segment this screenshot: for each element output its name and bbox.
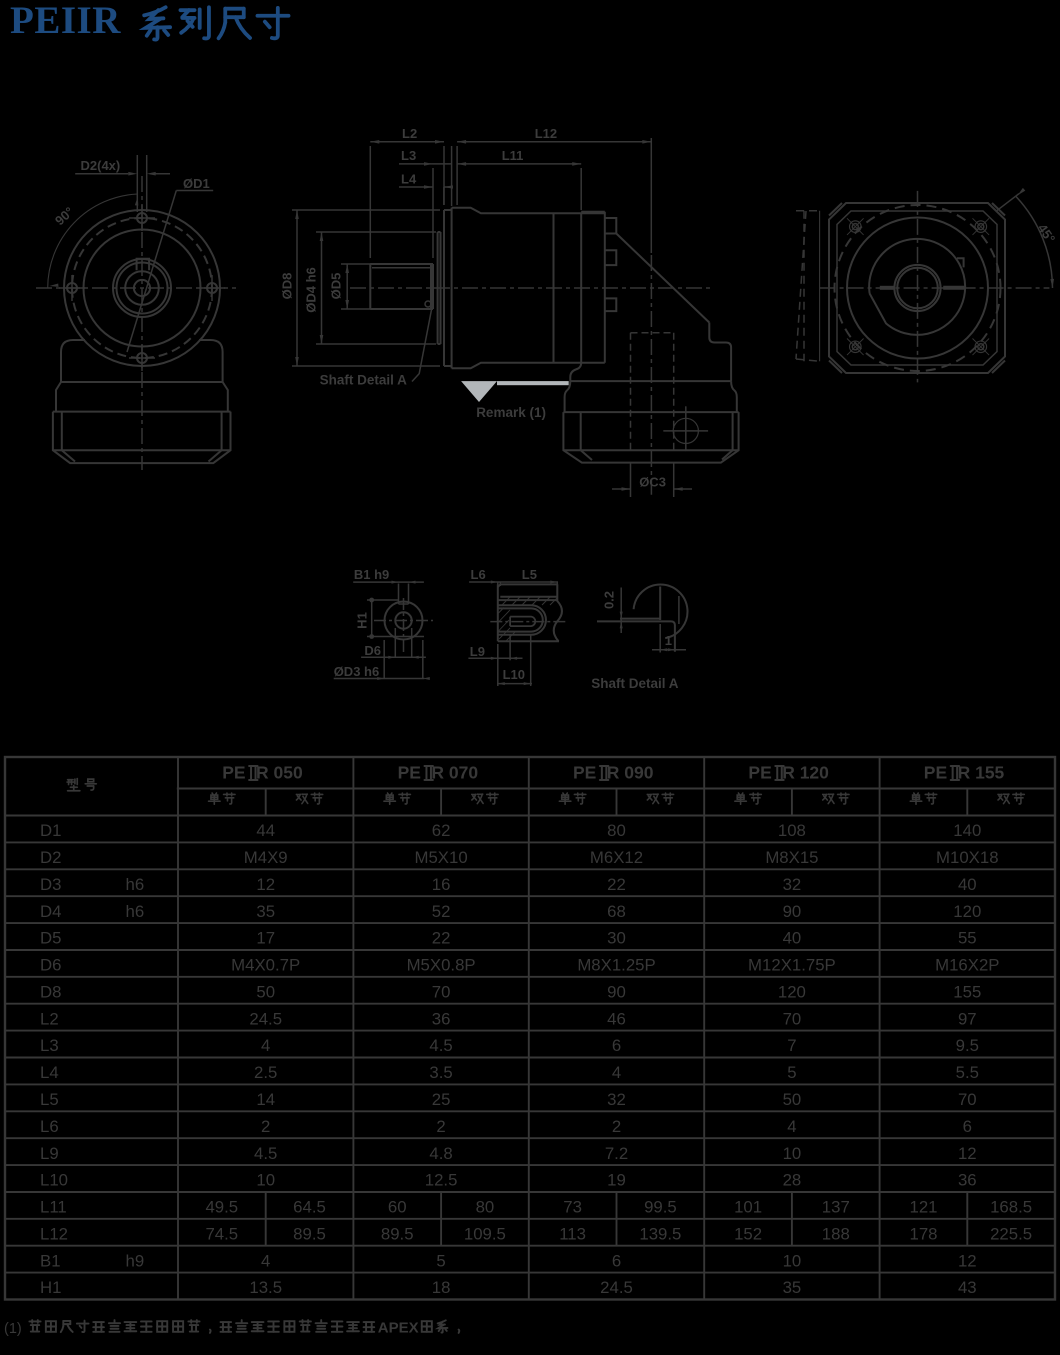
- svg-text:9.5: 9.5: [956, 1036, 979, 1055]
- svg-text:M16X2P: M16X2P: [935, 956, 999, 975]
- svg-text:ØD5: ØD5: [329, 273, 344, 300]
- svg-text:22: 22: [607, 875, 626, 894]
- svg-text:L3: L3: [401, 148, 416, 163]
- svg-text:L11: L11: [40, 1198, 67, 1217]
- svg-text:10: 10: [783, 1251, 802, 1270]
- svg-text:40: 40: [958, 875, 977, 894]
- svg-text:L2: L2: [40, 1009, 59, 1028]
- svg-text:R 070: R 070: [431, 763, 478, 783]
- svg-text:35: 35: [783, 1278, 802, 1297]
- svg-text:M12X1.75P: M12X1.75P: [748, 956, 836, 975]
- svg-text:10: 10: [783, 1144, 802, 1163]
- svg-text:4.5: 4.5: [429, 1036, 452, 1055]
- svg-text:L4: L4: [40, 1063, 59, 1082]
- svg-text:M4X9: M4X9: [244, 848, 288, 867]
- svg-text:D5: D5: [40, 929, 61, 948]
- svg-text:0.2: 0.2: [602, 591, 617, 609]
- svg-text:PE: PE: [222, 763, 245, 783]
- svg-text:12: 12: [958, 1144, 977, 1163]
- svg-text:44: 44: [256, 821, 275, 840]
- svg-text:L2: L2: [402, 126, 417, 141]
- svg-text:L6: L6: [40, 1117, 59, 1136]
- svg-text:152: 152: [734, 1224, 762, 1243]
- svg-text:108: 108: [778, 821, 806, 840]
- svg-text:PE: PE: [924, 763, 947, 783]
- svg-text:ØC3: ØC3: [639, 475, 666, 490]
- svg-text:ØD4 h6: ØD4 h6: [304, 267, 319, 313]
- svg-text:D4: D4: [40, 902, 61, 921]
- svg-text:D1: D1: [40, 821, 61, 840]
- svg-text:M10X18: M10X18: [936, 848, 999, 867]
- svg-text:M8X15: M8X15: [765, 848, 818, 867]
- svg-text:70: 70: [432, 982, 451, 1001]
- svg-text:139.5: 139.5: [639, 1224, 681, 1243]
- svg-text:R 090: R 090: [607, 763, 654, 783]
- svg-text:25: 25: [432, 1090, 451, 1109]
- svg-text:120: 120: [778, 982, 806, 1001]
- svg-text:16: 16: [432, 875, 451, 894]
- svg-text:60: 60: [388, 1198, 407, 1217]
- svg-text:5: 5: [787, 1063, 796, 1082]
- svg-text:73: 73: [563, 1198, 582, 1217]
- svg-text:6: 6: [963, 1117, 972, 1136]
- svg-text:18: 18: [432, 1278, 451, 1297]
- svg-text:L12: L12: [535, 126, 557, 141]
- svg-text:155: 155: [953, 982, 981, 1001]
- svg-text:M4X0.7P: M4X0.7P: [231, 956, 300, 975]
- svg-text:188: 188: [822, 1224, 850, 1243]
- svg-text:52: 52: [432, 902, 451, 921]
- svg-text:35: 35: [256, 902, 275, 921]
- svg-text:D2: D2: [40, 848, 61, 867]
- svg-text:24.5: 24.5: [600, 1278, 633, 1297]
- svg-text:R 120: R 120: [782, 763, 829, 783]
- svg-text:13.5: 13.5: [249, 1278, 282, 1297]
- svg-text:80: 80: [607, 821, 626, 840]
- svg-text:40: 40: [783, 929, 802, 948]
- svg-text:89.5: 89.5: [293, 1224, 326, 1243]
- svg-text:PE: PE: [398, 763, 421, 783]
- svg-text:43: 43: [958, 1278, 977, 1297]
- svg-text:28: 28: [783, 1171, 802, 1190]
- svg-text:32: 32: [607, 1090, 626, 1109]
- svg-text:ØD3 h6: ØD3 h6: [334, 664, 380, 679]
- svg-text:90: 90: [607, 982, 626, 1001]
- svg-text:4: 4: [612, 1063, 621, 1082]
- svg-text:6: 6: [612, 1251, 621, 1270]
- svg-text:46: 46: [607, 1009, 626, 1028]
- svg-text:99.5: 99.5: [644, 1198, 677, 1217]
- svg-text:5.5: 5.5: [956, 1063, 979, 1082]
- svg-text:62: 62: [432, 821, 451, 840]
- svg-text:M5X10: M5X10: [415, 848, 468, 867]
- svg-text:(1): (1): [4, 1321, 22, 1337]
- svg-text:12.5: 12.5: [425, 1171, 458, 1190]
- svg-text:h9: h9: [126, 1251, 145, 1270]
- svg-text:L5: L5: [40, 1090, 59, 1109]
- svg-text:30: 30: [607, 929, 626, 948]
- svg-text:Shaft Detail A: Shaft Detail A: [591, 676, 679, 691]
- svg-text:64.5: 64.5: [293, 1198, 326, 1217]
- svg-text:14: 14: [256, 1090, 275, 1109]
- svg-text:121: 121: [910, 1198, 938, 1217]
- svg-text:PE: PE: [573, 763, 596, 783]
- svg-text:178: 178: [910, 1224, 938, 1243]
- svg-text:4.8: 4.8: [429, 1144, 452, 1163]
- svg-text:113: 113: [559, 1224, 586, 1243]
- svg-text:L10: L10: [40, 1171, 68, 1190]
- svg-text:68: 68: [607, 902, 626, 921]
- svg-text:2: 2: [436, 1117, 445, 1136]
- svg-text:10: 10: [256, 1171, 275, 1190]
- svg-text:4: 4: [261, 1251, 270, 1270]
- svg-text:D6: D6: [40, 956, 61, 975]
- svg-text:Shaft Detail A: Shaft Detail A: [320, 373, 408, 388]
- svg-text:80: 80: [476, 1198, 495, 1217]
- svg-text:50: 50: [783, 1090, 802, 1109]
- svg-text:D3: D3: [40, 875, 61, 894]
- svg-text:h6: h6: [126, 875, 145, 894]
- svg-text:2: 2: [261, 1117, 270, 1136]
- svg-text:12: 12: [256, 875, 275, 894]
- svg-text:4.5: 4.5: [254, 1144, 277, 1163]
- svg-text:89.5: 89.5: [381, 1224, 414, 1243]
- svg-text:32: 32: [783, 875, 802, 894]
- svg-text:7: 7: [787, 1036, 796, 1055]
- svg-text:22: 22: [432, 929, 451, 948]
- svg-text:R 050: R 050: [256, 763, 303, 783]
- svg-text:97: 97: [958, 1009, 977, 1028]
- svg-text:B1 h9: B1 h9: [354, 567, 389, 582]
- svg-text:H1: H1: [355, 612, 370, 629]
- svg-text:Remark (1): Remark (1): [476, 405, 546, 420]
- svg-text:55: 55: [958, 929, 977, 948]
- svg-text:L3: L3: [40, 1036, 59, 1055]
- svg-text:D6: D6: [364, 643, 381, 658]
- svg-text:L11: L11: [502, 148, 524, 163]
- svg-text:M8X1.25P: M8X1.25P: [577, 956, 655, 975]
- svg-text:225.5: 225.5: [990, 1224, 1032, 1243]
- svg-text:L12: L12: [40, 1224, 68, 1243]
- svg-text:5: 5: [436, 1251, 445, 1270]
- svg-text:PEIIR: PEIIR: [10, 0, 121, 42]
- svg-text:L6: L6: [471, 567, 486, 582]
- svg-text:140: 140: [953, 821, 981, 840]
- svg-text:2: 2: [612, 1117, 621, 1136]
- svg-text:19: 19: [607, 1171, 626, 1190]
- svg-text:137: 137: [822, 1198, 850, 1217]
- svg-text:h6: h6: [126, 902, 145, 921]
- svg-text:109.5: 109.5: [464, 1224, 506, 1243]
- svg-text:70: 70: [783, 1009, 802, 1028]
- svg-text:17: 17: [256, 929, 275, 948]
- svg-text:3.5: 3.5: [429, 1063, 452, 1082]
- svg-text:ØD8: ØD8: [280, 273, 295, 300]
- svg-text:2.5: 2.5: [254, 1063, 277, 1082]
- svg-text:24.5: 24.5: [249, 1009, 282, 1028]
- svg-text:D2(4x): D2(4x): [81, 158, 121, 173]
- svg-text:ØD1: ØD1: [183, 176, 210, 191]
- svg-text:6: 6: [612, 1036, 621, 1055]
- svg-text:7.2: 7.2: [605, 1144, 628, 1163]
- svg-text:L9: L9: [40, 1144, 59, 1163]
- svg-text:H1: H1: [40, 1278, 61, 1297]
- svg-text:APEX: APEX: [378, 1320, 419, 1337]
- svg-text:4: 4: [261, 1036, 270, 1055]
- svg-text:120: 120: [953, 902, 981, 921]
- svg-text:101: 101: [734, 1198, 762, 1217]
- svg-text:M6X12: M6X12: [590, 848, 643, 867]
- svg-text:PE: PE: [748, 763, 771, 783]
- svg-text:R 155: R 155: [958, 763, 1005, 783]
- svg-text:36: 36: [432, 1009, 451, 1028]
- svg-text:M5X0.8P: M5X0.8P: [407, 956, 476, 975]
- svg-text:B1: B1: [40, 1251, 61, 1270]
- svg-text:4: 4: [787, 1117, 796, 1136]
- svg-text:D8: D8: [40, 982, 61, 1001]
- svg-text:L10: L10: [503, 667, 525, 682]
- svg-text:L4: L4: [401, 172, 417, 187]
- svg-text:70: 70: [958, 1090, 977, 1109]
- svg-text:168.5: 168.5: [990, 1198, 1032, 1217]
- svg-text:1: 1: [665, 633, 672, 648]
- svg-text:36: 36: [958, 1171, 977, 1190]
- svg-text:L5: L5: [522, 567, 537, 582]
- svg-text:12: 12: [958, 1251, 977, 1270]
- svg-text:74.5: 74.5: [205, 1224, 238, 1243]
- svg-text:90: 90: [783, 902, 802, 921]
- svg-text:50: 50: [256, 982, 275, 1001]
- svg-text:L9: L9: [470, 644, 485, 659]
- svg-text:49.5: 49.5: [205, 1198, 238, 1217]
